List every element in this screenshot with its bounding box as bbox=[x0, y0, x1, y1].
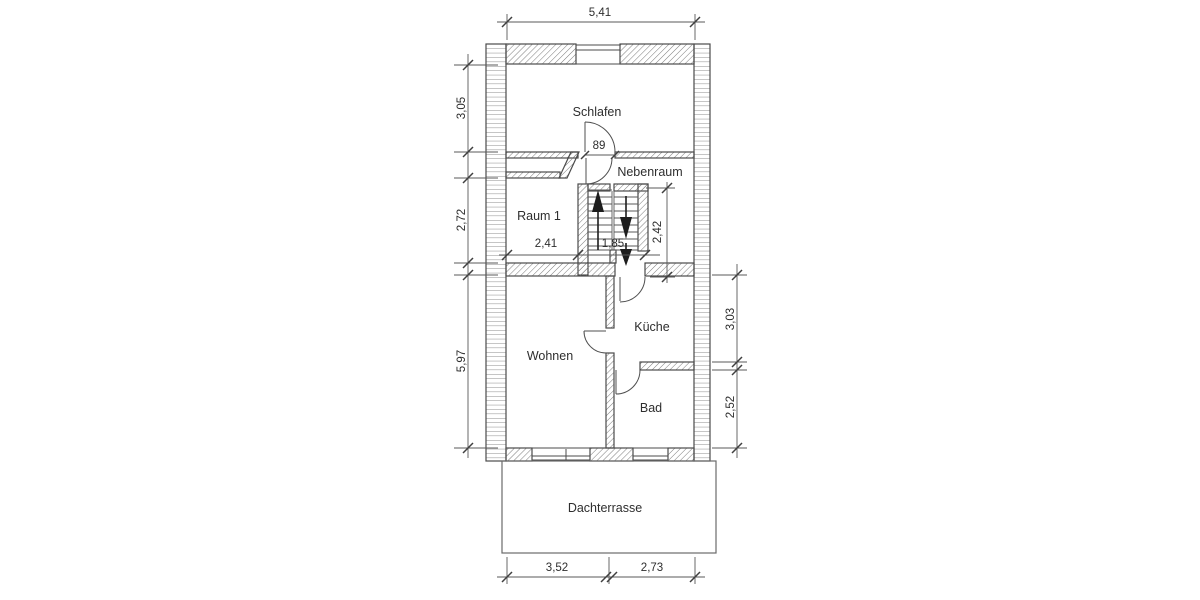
room-label-nebenraum: Nebenraum bbox=[617, 165, 682, 179]
dim-bottom bbox=[497, 557, 705, 584]
dim-label-door-width: 89 bbox=[593, 140, 606, 152]
room-label-schlafen: Schlafen bbox=[573, 105, 622, 119]
wall-schlafen-left bbox=[506, 152, 578, 158]
window-bottom-left bbox=[532, 448, 590, 461]
dim-label-bad-depth: 2,52 bbox=[725, 396, 737, 418]
door-stair-exit bbox=[620, 277, 645, 302]
room-label-bad: Bad bbox=[640, 401, 662, 415]
door-bad bbox=[616, 370, 640, 394]
wall-right bbox=[694, 44, 710, 461]
wall-stair-left bbox=[578, 184, 588, 275]
dim-label-overall-width: 5,41 bbox=[589, 7, 611, 19]
dim-label-schlafen-depth: 3,05 bbox=[456, 97, 468, 119]
window-bottom-right bbox=[633, 448, 668, 461]
wall-wohnen-bad-lower bbox=[606, 353, 614, 448]
wall-stair-exit-jamb bbox=[610, 250, 616, 263]
wall-bottom-seg3 bbox=[668, 448, 694, 461]
wall-top-right-seg bbox=[620, 44, 694, 64]
stair-arrow-down-1 bbox=[620, 196, 632, 239]
room-label-dachterrasse: Dachterrasse bbox=[568, 501, 642, 515]
window-top bbox=[576, 44, 620, 64]
door-wohnen bbox=[584, 331, 606, 353]
dim-label-stair-depth: 2,42 bbox=[652, 221, 664, 243]
dim-label-wohnen-depth: 5,97 bbox=[456, 350, 468, 372]
wall-top-left-seg bbox=[506, 44, 576, 64]
wall-wohnen-kueche-upper bbox=[606, 276, 614, 328]
wall-schlafen-right bbox=[615, 152, 694, 158]
dim-label-terrace-left: 3,52 bbox=[546, 562, 568, 574]
wall-bad-top bbox=[640, 362, 694, 370]
dim-right-chain bbox=[712, 264, 747, 458]
dim-label-kueche-depth: 3,03 bbox=[725, 308, 737, 330]
dim-label-raum1-width: 2,41 bbox=[535, 238, 557, 250]
door-nebenraum bbox=[586, 158, 612, 184]
dim-door-89 bbox=[581, 151, 619, 159]
wall-middle-left bbox=[506, 263, 615, 276]
room-label-raum1: Raum 1 bbox=[517, 209, 561, 223]
wall-left bbox=[486, 44, 506, 461]
room-label-kueche: Küche bbox=[634, 320, 669, 334]
floor-plan-page: Schlafen Nebenraum Raum 1 Wohnen Küche B… bbox=[0, 0, 1200, 600]
dim-label-stair-width: 1,85 bbox=[602, 238, 624, 250]
interior-walls bbox=[506, 152, 694, 448]
dim-label-raum1-depth: 2,72 bbox=[456, 209, 468, 231]
wall-bottom-seg2 bbox=[590, 448, 633, 461]
room-label-wohnen: Wohnen bbox=[527, 349, 573, 363]
dim-label-terrace-right: 2,73 bbox=[641, 562, 663, 574]
wall-stair-right bbox=[638, 184, 648, 251]
wall-bottom-seg1 bbox=[506, 448, 532, 461]
floor-plan-drawing: Schlafen Nebenraum Raum 1 Wohnen Küche B… bbox=[0, 0, 1200, 600]
wall-raum1-top bbox=[506, 172, 560, 178]
